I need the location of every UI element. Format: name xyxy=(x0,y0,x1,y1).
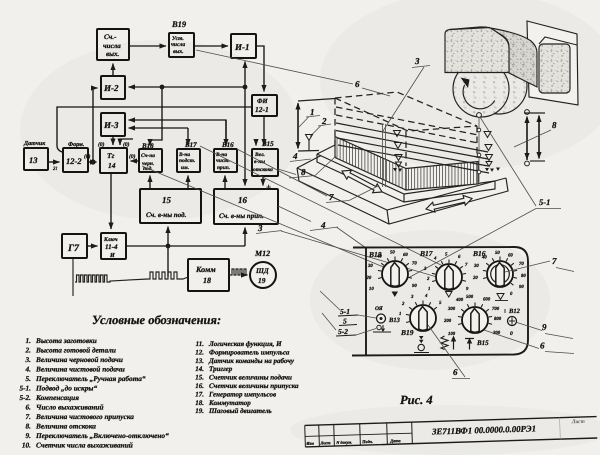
svg-text:В19: В19 xyxy=(400,328,414,337)
svg-text:Лист: Лист xyxy=(571,419,585,425)
svg-text:6: 6 xyxy=(540,341,545,351)
svg-text:3: 3 xyxy=(257,223,263,233)
svg-text:200: 200 xyxy=(443,318,452,324)
svg-text:Величина чистового припуска: Величина чистового припуска xyxy=(35,412,134,421)
svg-text:Лист: Лист xyxy=(319,440,331,445)
svg-text:80: 80 xyxy=(521,273,526,279)
svg-text:30: 30 xyxy=(473,263,479,269)
svg-text:5: 5 xyxy=(343,317,347,326)
svg-text:Счетчик величины припуска: Счетчик величины припуска xyxy=(209,382,299,390)
svg-text:(0): (0) xyxy=(84,154,91,160)
svg-text:Величина чистовой подачи: Величина чистовой подачи xyxy=(35,365,125,374)
svg-text:числа: числа xyxy=(103,42,121,50)
svg-text:Условные обозначения:: Условные обозначения: xyxy=(92,313,221,327)
svg-text:В12: В12 xyxy=(508,308,521,315)
svg-text:60: 60 xyxy=(403,252,408,258)
svg-text:50: 50 xyxy=(495,250,500,256)
svg-text:чист.: чист. xyxy=(216,158,230,164)
svg-text:3.: 3. xyxy=(25,355,32,364)
svg-text:Высота готовой детали: Высота готовой детали xyxy=(35,346,116,355)
svg-text:5-1.: 5-1. xyxy=(19,384,31,393)
svg-text:100: 100 xyxy=(448,331,456,337)
svg-text:Переключатель „Включено-отключ: Переключатель „Включено-отключено“ xyxy=(35,431,169,440)
svg-text:3: 3 xyxy=(410,294,414,300)
svg-text:70: 70 xyxy=(519,261,524,267)
svg-text:Формирователь импульса: Формирователь импульса xyxy=(209,348,290,356)
svg-text:Подвод „до искры“: Подвод „до искры“ xyxy=(35,384,97,393)
svg-text:В16: В16 xyxy=(221,141,234,149)
svg-text:30: 30 xyxy=(367,263,373,269)
svg-text:16.: 16. xyxy=(195,382,204,390)
svg-text:13: 13 xyxy=(29,155,38,165)
svg-text:700: 700 xyxy=(492,306,500,312)
svg-text:50: 50 xyxy=(390,250,395,256)
svg-text:1: 1 xyxy=(310,107,315,117)
svg-text:4: 4 xyxy=(424,293,428,299)
svg-text:им.: им. xyxy=(181,165,189,171)
svg-text:2: 2 xyxy=(401,301,405,307)
svg-text:вых.: вых. xyxy=(106,50,119,58)
svg-text:(0): (0) xyxy=(129,154,136,160)
svg-text:5-2.: 5-2. xyxy=(19,393,31,402)
svg-text:подст.: подст. xyxy=(179,158,195,164)
svg-text:70: 70 xyxy=(412,261,417,267)
svg-text:вых.: вых. xyxy=(173,49,184,55)
svg-text:15: 15 xyxy=(162,195,172,205)
svg-text:7: 7 xyxy=(329,192,334,202)
svg-text:9: 9 xyxy=(542,322,547,332)
svg-text:12-1: 12-1 xyxy=(255,105,269,114)
svg-text:2: 2 xyxy=(426,276,430,282)
svg-text:4: 4 xyxy=(292,151,298,161)
svg-text:20: 20 xyxy=(366,275,372,281)
svg-text:Тг: Тг xyxy=(107,151,115,160)
svg-text:В13: В13 xyxy=(388,317,401,324)
svg-text:14.: 14. xyxy=(195,365,204,373)
svg-text:Величина отскока: Величина отскока xyxy=(35,422,96,431)
svg-text:И: И xyxy=(109,253,115,259)
svg-text:15.: 15. xyxy=(195,374,204,382)
svg-text:Подп.: Подп. xyxy=(361,439,373,444)
svg-text:Триггер: Триггер xyxy=(209,365,233,373)
svg-text:1: 1 xyxy=(428,286,430,292)
svg-text:Дата: Дата xyxy=(389,438,400,443)
svg-text:Сч-на: Сч-на xyxy=(141,153,155,159)
svg-text:Логическая функция, И: Логическая функция, И xyxy=(208,340,282,348)
svg-text:9.: 9. xyxy=(26,431,32,440)
svg-text:N докум.: N докум. xyxy=(335,439,352,445)
svg-text:5-2: 5-2 xyxy=(338,327,348,336)
svg-text:13.: 13. xyxy=(195,357,204,365)
svg-text:600: 600 xyxy=(483,297,491,303)
svg-text:4.: 4. xyxy=(25,365,32,374)
svg-text:8: 8 xyxy=(552,120,557,130)
svg-text:8: 8 xyxy=(301,167,306,177)
svg-text:3: 3 xyxy=(423,266,427,272)
svg-text:И-1: И-1 xyxy=(234,42,250,52)
svg-text:19.: 19. xyxy=(195,407,204,415)
svg-text:И-3: И-3 xyxy=(103,120,119,130)
svg-text:ФИ: ФИ xyxy=(257,98,269,105)
svg-text:17.: 17. xyxy=(195,390,204,398)
svg-text:Счетчик числа выхаживаний: Счетчик числа выхаживаний xyxy=(36,441,133,450)
svg-text:1.: 1. xyxy=(26,336,32,345)
svg-text:6: 6 xyxy=(453,367,458,377)
svg-text:Высота заготовки: Высота заготовки xyxy=(35,336,97,345)
svg-text:11-4: 11-4 xyxy=(105,243,118,251)
svg-text:4: 4 xyxy=(433,256,437,262)
svg-text:16: 16 xyxy=(238,195,248,205)
svg-text:90: 90 xyxy=(519,284,524,290)
svg-text:Сч.-: Сч.- xyxy=(104,33,117,41)
svg-text:5.: 5. xyxy=(26,374,32,383)
svg-text:14: 14 xyxy=(108,161,116,170)
svg-text:18: 18 xyxy=(203,276,211,285)
svg-text:7.: 7. xyxy=(26,412,32,421)
svg-text:11.: 11. xyxy=(196,340,205,348)
svg-text:Сч. в-ны под.: Сч. в-ны под. xyxy=(146,211,187,219)
svg-text:Величина черновой подачи: Величина черновой подачи xyxy=(35,355,123,364)
svg-text:Коммутатор: Коммутатор xyxy=(208,399,251,407)
svg-text:ШД: ШД xyxy=(255,267,269,275)
svg-text:10.: 10. xyxy=(22,441,31,450)
svg-text:Шаговый двигатель: Шаговый двигатель xyxy=(208,407,272,415)
svg-text:Генератор импульсов: Генератор импульсов xyxy=(208,390,276,398)
svg-text:Датчик: Датчик xyxy=(23,141,46,147)
svg-text:числа: числа xyxy=(171,42,185,48)
svg-text:0: 0 xyxy=(510,331,513,337)
svg-text:Вел.: Вел. xyxy=(254,152,265,158)
svg-text:5-1: 5-1 xyxy=(340,307,350,316)
svg-text:в-ны: в-ны xyxy=(254,159,265,165)
svg-text:Комм: Комм xyxy=(195,265,216,274)
svg-text:12.: 12. xyxy=(195,348,204,356)
svg-text:40: 40 xyxy=(481,255,487,261)
svg-text:7: 7 xyxy=(552,256,557,266)
svg-text:19: 19 xyxy=(258,276,266,285)
svg-text:В15: В15 xyxy=(261,140,274,148)
svg-text:прип.: прип. xyxy=(217,165,230,171)
svg-text:10: 10 xyxy=(369,286,374,292)
svg-text:Переключатель „Ручная работа“: Переключатель „Ручная работа“ xyxy=(35,374,146,383)
svg-text:2!: 2! xyxy=(52,166,58,172)
svg-text:В17: В17 xyxy=(184,141,197,149)
svg-text:ОЯ: ОЯ xyxy=(375,306,383,312)
svg-text:Сч. в-ны прип.: Сч. в-ны прип. xyxy=(219,212,264,220)
svg-text:90: 90 xyxy=(412,283,417,289)
svg-text:Изм: Изм xyxy=(305,441,314,446)
svg-text:М12: М12 xyxy=(254,249,270,258)
svg-text:6: 6 xyxy=(355,79,360,89)
svg-text:8.: 8. xyxy=(26,422,32,431)
svg-text:отскока: отскока xyxy=(253,167,273,173)
svg-text:60: 60 xyxy=(508,253,513,259)
svg-text:18.: 18. xyxy=(195,399,204,407)
svg-text:Г7: Г7 xyxy=(67,243,80,254)
svg-text:Компенсация: Компенсация xyxy=(35,393,79,402)
svg-text:+: + xyxy=(266,182,271,192)
svg-text:2.: 2. xyxy=(25,346,32,355)
svg-text:Рис. 4: Рис. 4 xyxy=(400,393,433,407)
svg-text:И-2: И-2 xyxy=(103,83,119,93)
svg-text:В17: В17 xyxy=(419,249,433,258)
svg-text:(0): (0) xyxy=(98,142,105,148)
svg-text:Счетчик величины подачи: Счетчик величины подачи xyxy=(209,374,292,382)
svg-text:Число выхаживаний: Число выхаживаний xyxy=(36,403,104,412)
svg-text:5-1: 5-1 xyxy=(539,197,550,207)
svg-text:3: 3 xyxy=(414,56,420,66)
svg-text:300: 300 xyxy=(447,306,456,312)
svg-text:6.: 6. xyxy=(26,403,32,412)
svg-text:В19: В19 xyxy=(171,19,187,29)
svg-text:(0): (0) xyxy=(123,142,130,148)
svg-text:400: 400 xyxy=(455,297,464,303)
svg-text:20: 20 xyxy=(472,275,478,281)
svg-text:800: 800 xyxy=(494,316,502,322)
svg-text:40: 40 xyxy=(376,254,382,260)
svg-text:12-2: 12-2 xyxy=(66,156,82,166)
svg-text:500: 500 xyxy=(466,294,474,300)
svg-text:Датчик команды на рабочу: Датчик команды на рабочу xyxy=(208,357,295,365)
svg-text:В15: В15 xyxy=(476,339,489,347)
